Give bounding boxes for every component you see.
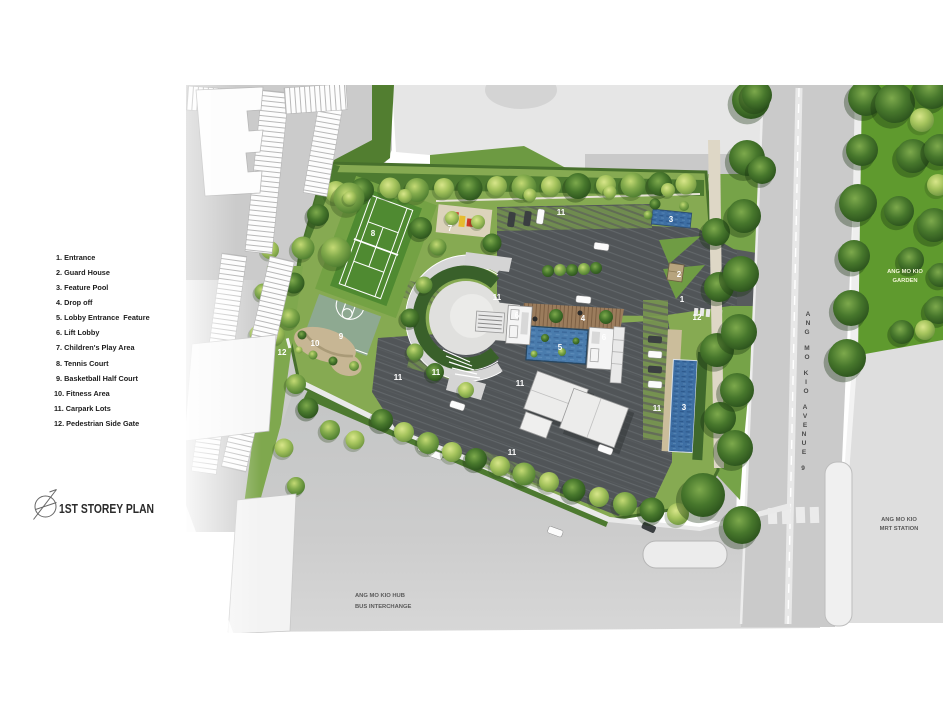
svg-text:11: 11: [493, 293, 502, 302]
svg-text:5: 5: [558, 343, 563, 352]
svg-text:11: 11: [516, 379, 525, 388]
svg-text:M: M: [804, 345, 809, 352]
svg-text:12: 12: [693, 313, 702, 322]
svg-text:4: 4: [581, 314, 586, 323]
svg-text:2: 2: [677, 270, 682, 279]
svg-text:11: 11: [508, 448, 517, 457]
svg-text:N: N: [802, 431, 807, 438]
svg-text:E: E: [802, 449, 807, 456]
svg-text:1. Entrance: 1. Entrance: [56, 253, 95, 262]
svg-text:7: 7: [448, 224, 453, 233]
svg-text:1ST STOREY PLAN: 1ST STOREY PLAN: [59, 501, 154, 516]
svg-text:I: I: [805, 379, 807, 386]
svg-text:V: V: [803, 413, 808, 420]
svg-text:ANG MO KIO HUB: ANG MO KIO HUB: [355, 593, 405, 599]
svg-text:ANG MO KIO: ANG MO KIO: [881, 517, 917, 523]
svg-text:A: A: [803, 404, 808, 411]
svg-text:12: 12: [278, 348, 287, 357]
svg-text:11: 11: [653, 404, 662, 413]
svg-text:8. Tennis Court: 8. Tennis Court: [56, 359, 109, 368]
svg-text:2. Guard House: 2. Guard House: [56, 268, 110, 277]
svg-text:5. Lobby Entrance Feature: 5. Lobby Entrance Feature: [56, 313, 150, 322]
svg-text:U: U: [802, 440, 807, 447]
svg-text:G: G: [804, 329, 809, 336]
svg-text:9. Basketball Half Court: 9. Basketball Half Court: [56, 374, 138, 383]
svg-text:MRT STATION: MRT STATION: [880, 526, 919, 532]
svg-text:BUS INTERCHANGE: BUS INTERCHANGE: [355, 604, 411, 610]
svg-text:9: 9: [339, 332, 344, 341]
svg-text:6: 6: [515, 311, 520, 320]
svg-text:11: 11: [557, 208, 566, 217]
svg-text:11. Carpark Lots: 11. Carpark Lots: [54, 404, 111, 413]
svg-text:1: 1: [680, 295, 685, 304]
svg-text:O: O: [803, 388, 808, 395]
svg-text:4. Drop off: 4. Drop off: [56, 298, 93, 307]
svg-text:O: O: [804, 354, 809, 361]
svg-text:GARDEN: GARDEN: [892, 278, 917, 284]
svg-text:6: 6: [602, 333, 607, 342]
svg-text:3: 3: [682, 403, 687, 412]
svg-text:9: 9: [801, 465, 805, 472]
svg-text:N: N: [806, 320, 811, 327]
svg-text:10: 10: [311, 339, 320, 348]
svg-text:11: 11: [432, 368, 441, 377]
svg-text:10. Fitness Area: 10. Fitness Area: [54, 389, 111, 398]
svg-text:K: K: [804, 370, 809, 377]
svg-text:3: 3: [669, 215, 674, 224]
svg-text:ANG MO KIO: ANG MO KIO: [887, 269, 923, 275]
svg-text:12. Pedestrian Side Gate: 12. Pedestrian Side Gate: [54, 419, 139, 428]
svg-text:11: 11: [394, 373, 403, 382]
svg-text:A: A: [806, 311, 811, 318]
svg-text:7. Children's Play Area: 7. Children's Play Area: [56, 343, 135, 352]
svg-text:8: 8: [371, 229, 376, 238]
svg-text:6. Lift Lobby: 6. Lift Lobby: [56, 328, 100, 337]
svg-text:3. Feature Pool: 3. Feature Pool: [56, 283, 108, 292]
svg-text:E: E: [803, 422, 808, 429]
